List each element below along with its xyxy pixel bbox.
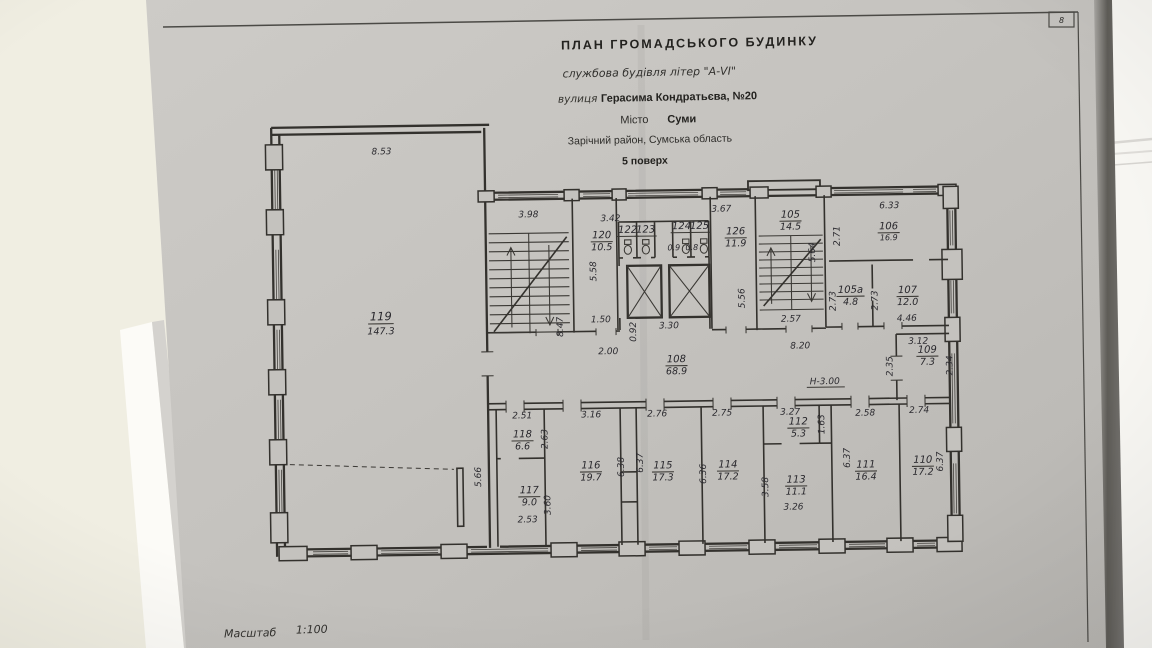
dim-d3_42: 3.42 — [600, 214, 620, 224]
floor-label: 5 поверх — [622, 155, 668, 168]
room-area-r113: 11.1 — [786, 486, 807, 497]
room-number-r117: 117 — [520, 485, 540, 496]
room-area-r111: 16.4 — [855, 471, 876, 482]
room-area-r124: 0.9 — [667, 243, 680, 252]
city-value: Суми — [667, 113, 696, 126]
dim-d3_60: 3.60 — [543, 495, 553, 515]
room-number-r124: 124 — [672, 221, 691, 232]
room-number-r116: 116 — [581, 460, 600, 471]
street-label: вулиця — [558, 93, 598, 106]
room-number-r106: 106 — [879, 221, 898, 232]
room-number-r112: 112 — [789, 416, 808, 427]
room-number-r105a: 105а — [838, 285, 863, 296]
dim-d2_53: 2.53 — [518, 515, 538, 525]
dim-d2_75: 2.75 — [712, 408, 732, 418]
dim-d2_74: 2.74 — [909, 406, 929, 416]
room-number-r108: 108 — [667, 354, 686, 365]
dim-d2_71: 2.71 — [833, 226, 843, 246]
room-number-r105: 105 — [781, 209, 800, 220]
dim-d8_20: 8.20 — [790, 341, 810, 351]
dim-d6_38: 6.38 — [617, 457, 627, 477]
dim-d2_00: 2.00 — [598, 347, 618, 357]
room-number-r118: 118 — [513, 429, 532, 440]
room-number-r113: 113 — [786, 474, 805, 485]
dim-d2_34: 2.34 — [945, 355, 955, 375]
room-number-r110: 110 — [913, 455, 932, 466]
room-area-r115: 17.3 — [652, 472, 673, 483]
room-area-r110: 17.2 — [912, 467, 933, 478]
room-area-r117: 9.0 — [522, 497, 537, 508]
dim-d8_47: 8.47 — [556, 316, 566, 336]
dim-d1_50: 1.50 — [591, 315, 611, 325]
dim-d2_58: 2.58 — [855, 408, 875, 418]
dim-d6_37b: 6.37 — [843, 447, 853, 467]
room-area-r112: 5.3 — [791, 428, 806, 439]
room-number-r120: 120 — [592, 230, 611, 241]
dim-d3_98: 3.98 — [518, 210, 538, 220]
room-area-r108: 68.9 — [666, 366, 687, 377]
dim-d2_51: 2.51 — [512, 411, 532, 421]
dim-d3_30: 3.30 — [659, 321, 679, 331]
room-number-r119: 119 — [370, 309, 392, 323]
room-number-r109: 109 — [918, 345, 937, 356]
room-area-r119: 147.3 — [367, 326, 394, 337]
scale-value: 1:100 — [296, 623, 328, 637]
dim-height_note: Н-3.00 — [810, 377, 840, 387]
room-number-r122: 122 — [618, 225, 637, 236]
dim-d3_58: 3.58 — [761, 477, 771, 497]
room-number-r115: 115 — [653, 460, 672, 471]
dim-d4_46: 4.46 — [897, 314, 917, 324]
dim-d5_64: 5.64 — [808, 242, 818, 262]
dim-d6_37c: 6.37 — [936, 451, 946, 471]
scale-label: Масштаб — [224, 626, 277, 640]
room-area-r116: 19.7 — [580, 472, 601, 483]
scanned-floor-plan-photo: 8 ПЛАН ГРОМАДСЬКОГО БУДИНКУ службова буд… — [0, 0, 1152, 648]
dim-d3_26: 3.26 — [783, 502, 803, 512]
dim-d0_92: 0.92 — [629, 321, 639, 341]
room-area-r105a: 4.8 — [843, 297, 858, 308]
dim-d6_37a: 6.37 — [636, 452, 646, 472]
room-number-r123: 123 — [636, 224, 655, 235]
room-area-r126: 11.9 — [725, 238, 746, 249]
room-number-r126: 126 — [726, 226, 745, 237]
dim-d8_53: 8.53 — [371, 147, 391, 157]
room-area-r106: 16.9 — [880, 233, 898, 242]
room-area-r118: 6.6 — [515, 441, 530, 452]
room-area-r109: 7.3 — [920, 357, 935, 368]
room-area-r120: 10.5 — [591, 242, 612, 253]
city-label: Місто — [620, 114, 648, 126]
dim-d3_67: 3.67 — [711, 204, 731, 214]
dim-d3_16: 3.16 — [581, 410, 601, 420]
room-number-r125: 125 — [690, 221, 709, 232]
room-number-r107: 107 — [898, 285, 918, 296]
dim-d2_73b: 2.73 — [870, 290, 880, 310]
sheet-corner-number: 8 — [1059, 16, 1064, 25]
room-number-r114: 114 — [718, 459, 737, 470]
dim-d2_57: 2.57 — [781, 314, 801, 324]
dim-d5_58: 5.58 — [589, 261, 599, 281]
room-area-r107: 12.0 — [897, 297, 918, 308]
room-area-r125: 0.8 — [685, 243, 698, 252]
room-area-r114: 17.2 — [717, 471, 738, 482]
dim-d2_76: 2.76 — [647, 409, 667, 419]
dim-d2_35: 2.35 — [885, 356, 895, 376]
room-number-r111: 111 — [856, 459, 875, 470]
dim-d5_66: 5.66 — [474, 467, 484, 487]
dim-d2_63: 2.63 — [540, 429, 550, 449]
dim-d5_56: 5.56 — [737, 288, 747, 308]
room-area-r105: 14.5 — [780, 221, 801, 232]
dim-d1_63: 1.63 — [817, 414, 827, 434]
dim-d6_36: 6.36 — [699, 463, 709, 483]
dim-d6_33: 6.33 — [879, 201, 899, 211]
